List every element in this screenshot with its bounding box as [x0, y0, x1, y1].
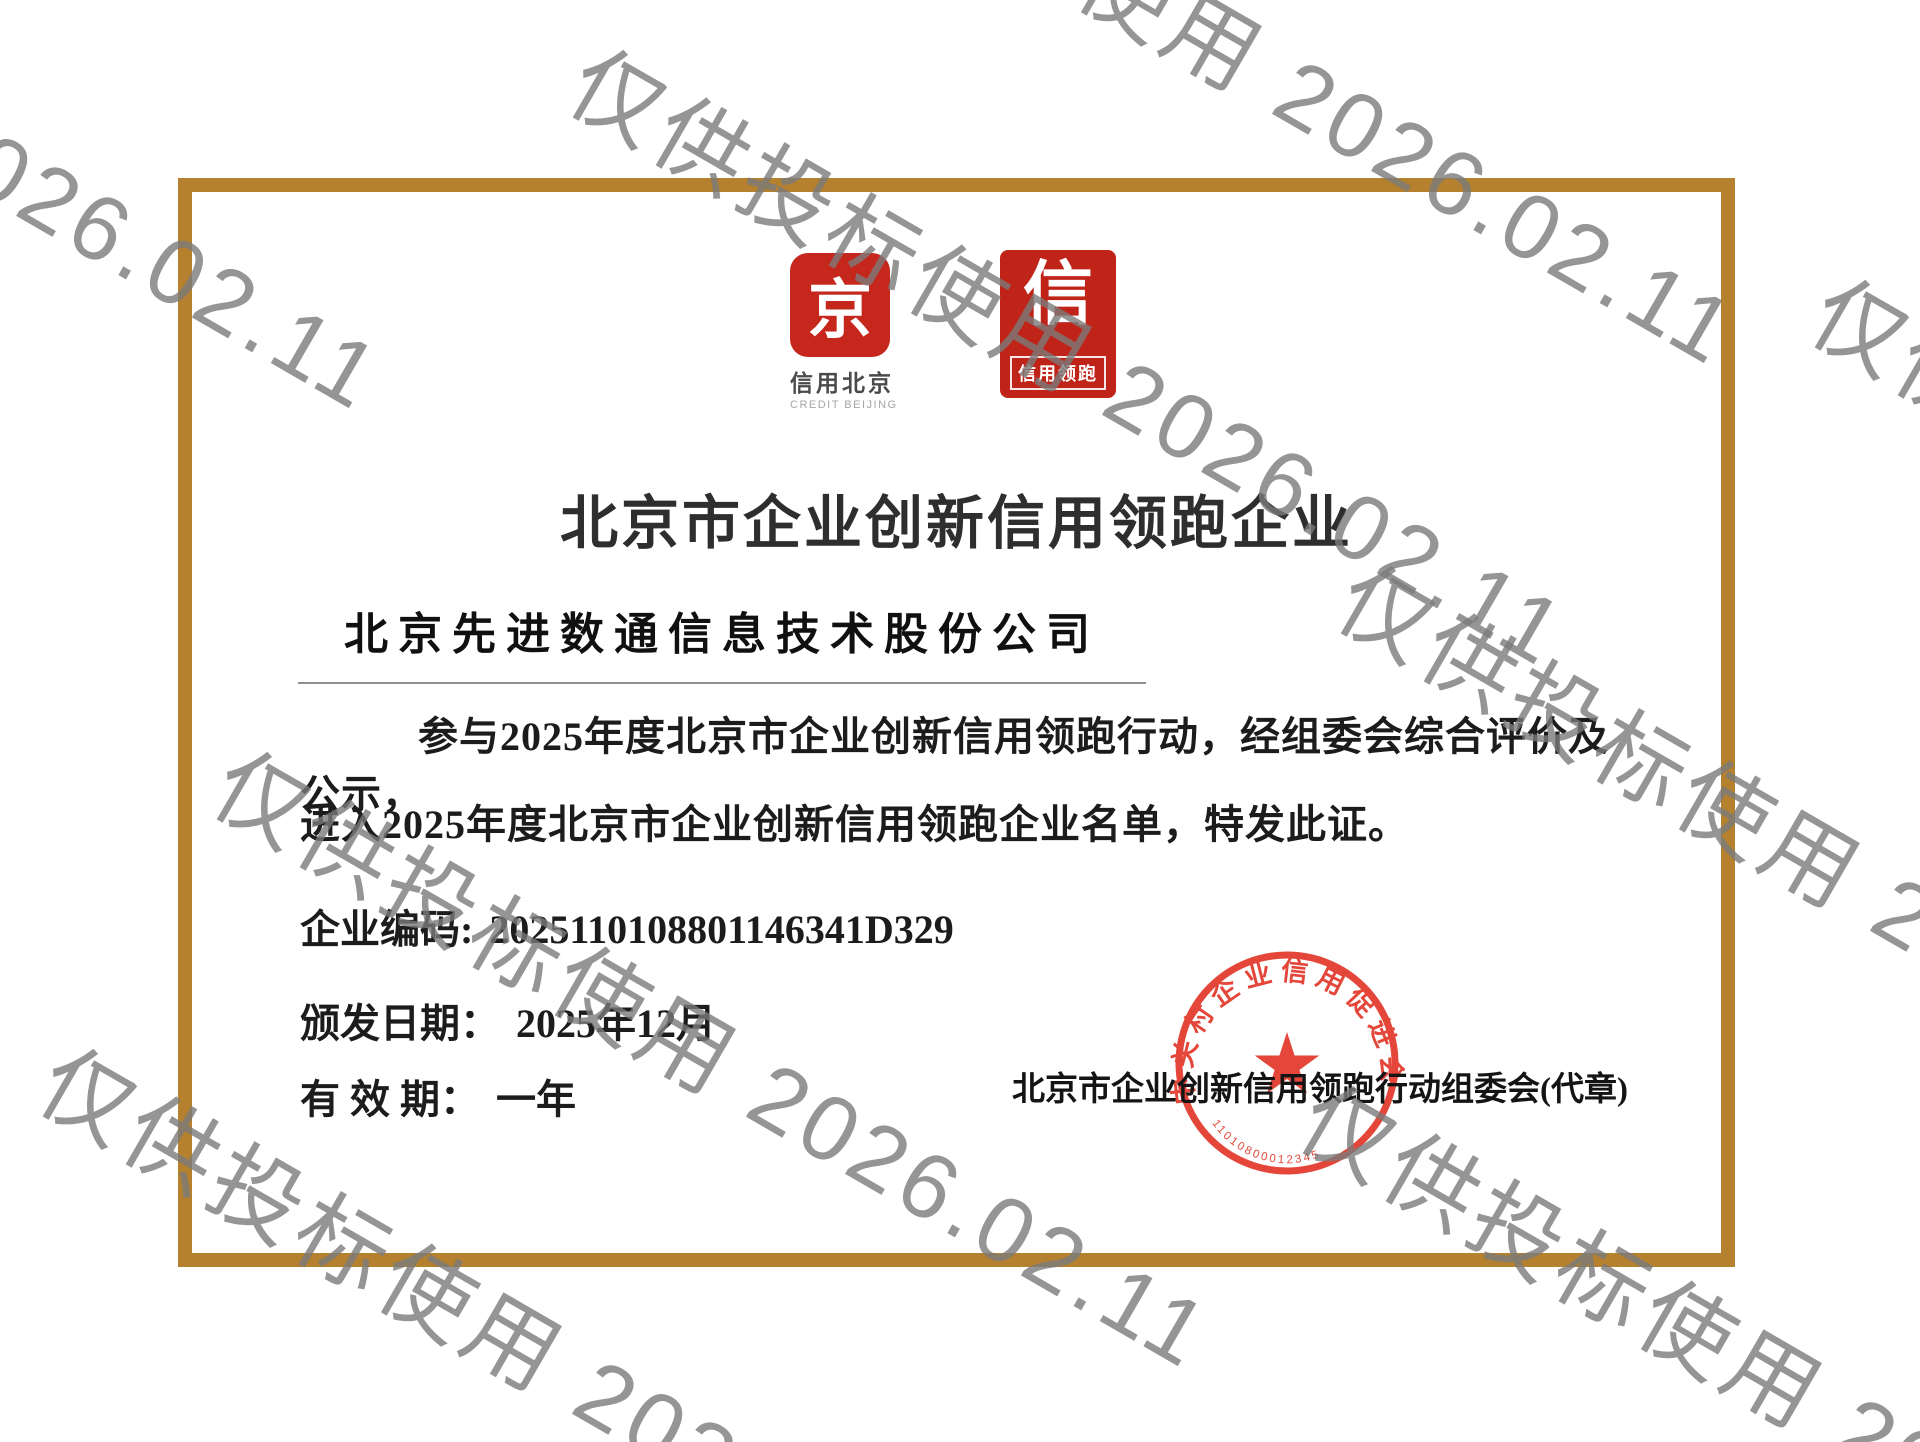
issue-date-field: 颁发日期：2025年12月 — [300, 991, 716, 1049]
seal-bottom-digits: 11010800012345 — [1209, 1118, 1322, 1167]
watermark-text: 仅供投标使用 2026.02.11 — [1796, 266, 1920, 912]
credit-beijing-label-cn: 信用北京 — [790, 364, 890, 398]
credit-beijing-label-en: CREDIT BEIJING — [790, 399, 890, 411]
enterprise-code-field: 企业编码:2025110108801146341D329 — [300, 897, 954, 955]
validity-value: 一年 — [496, 1077, 576, 1122]
validity-field: 有 效 期：一年 — [300, 1067, 576, 1125]
credit-beijing-logo-icon: 京 — [790, 253, 890, 357]
credit-beijing-logo: 京 信用北京 CREDIT BEIJING — [790, 253, 890, 411]
svg-text:11010800012345: 11010800012345 — [1209, 1118, 1322, 1167]
company-name: 北京先进数通信息技术股份公司 — [298, 598, 1146, 684]
credit-leading-glyph: 信 — [1023, 256, 1093, 336]
issuer-line: 北京市企业创新信用领跑行动组委会(代章) — [1012, 1062, 1628, 1110]
enterprise-code-label: 企业编码: — [300, 907, 473, 952]
enterprise-code-value: 2025110108801146341D329 — [489, 907, 953, 952]
certificate-title: 北京市企业创新信用领跑企业 — [192, 476, 1721, 560]
certificate-page: 京 信用北京 CREDIT BEIJING 信 信用领跑 北京市企业创新信用领跑… — [0, 0, 1920, 1442]
body-line-2: 进入2025年度北京市企业创新信用领跑企业名单，特发此证。 — [300, 792, 1620, 850]
credit-beijing-glyph: 京 — [808, 259, 872, 351]
validity-label: 有 效 期： — [300, 1077, 480, 1122]
issue-date-value: 2025年12月 — [516, 1001, 716, 1046]
issue-date-label: 颁发日期： — [300, 1001, 500, 1046]
credit-leading-banner: 信用领跑 — [1010, 356, 1106, 390]
credit-leading-seal-icon: 信 信用领跑 — [1000, 250, 1116, 398]
watermark-text: 仅供投标使用 2026.02.11 — [0, 40, 9, 686]
